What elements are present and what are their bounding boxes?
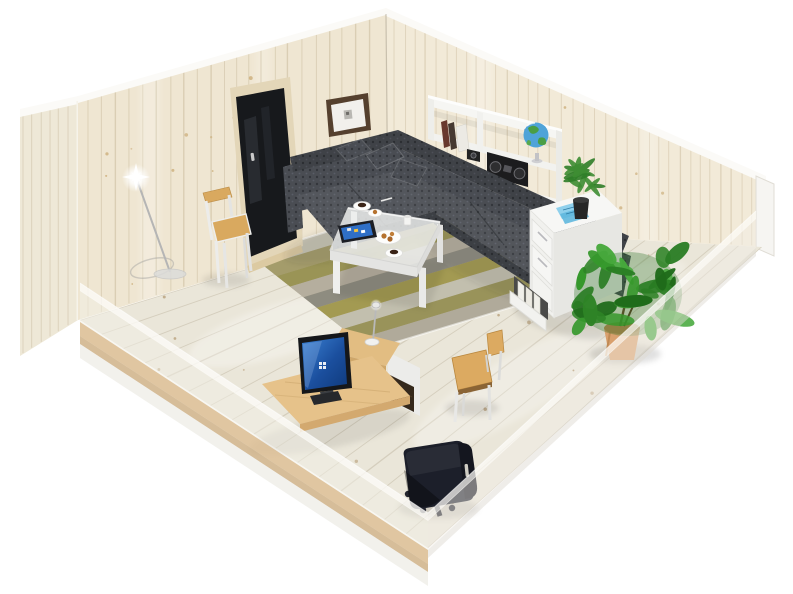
shelf-divider [477,111,483,152]
wood-knot [105,175,107,177]
wood-knot [497,314,500,317]
tablet-app [347,228,351,232]
wood-knot [619,206,622,209]
shelf-end-left [428,98,434,141]
wood-knot [105,152,108,155]
cookie [373,210,377,214]
wood-knot [243,369,245,371]
wood-knot [131,283,133,285]
shelf-end-right [556,130,562,209]
picture-art-detail [346,112,349,115]
cookie [390,232,394,236]
boombox-speaker-right [514,168,525,179]
tablet-app [354,229,358,233]
mug-top [404,215,411,218]
table-leg [419,267,426,308]
wooden-chair-leg [455,392,457,422]
wood-knot [171,169,174,172]
desk-lamp-head [372,302,380,308]
cookie [381,233,386,238]
wood-knot [184,133,188,137]
wood-knot [130,148,132,150]
wooden-chair-leg [489,385,490,420]
boombox-speaker-left [490,162,501,173]
wood-knot [212,170,214,172]
outer-wall-band [20,96,78,356]
lamp-base [154,269,186,279]
room-render [0,0,793,594]
small-plant-pot-top [573,197,589,203]
wood-knot [661,192,664,195]
wood-knot [572,369,574,371]
camera-lens [471,153,476,158]
wood-knot [564,106,567,109]
coffee-cup [358,203,366,208]
wood-knot [635,172,638,175]
picture-frame [326,93,371,137]
cookie [387,236,392,241]
wood-knot [355,460,358,463]
tablet-app [361,230,365,234]
wood-knot [174,337,177,340]
globe-land [538,137,546,145]
room-render-stage [0,0,793,594]
right-wall-end-cap [756,176,774,256]
wooden-chair-leg [463,393,464,416]
wood-knot [249,76,253,80]
cookie-plate [375,230,401,244]
globe-stem [535,153,539,161]
wood-knot [210,136,212,138]
coffee-cup [390,250,398,255]
outer-wall-face [20,101,78,356]
wood-knot [163,295,166,298]
desk-lamp-base [365,339,379,346]
